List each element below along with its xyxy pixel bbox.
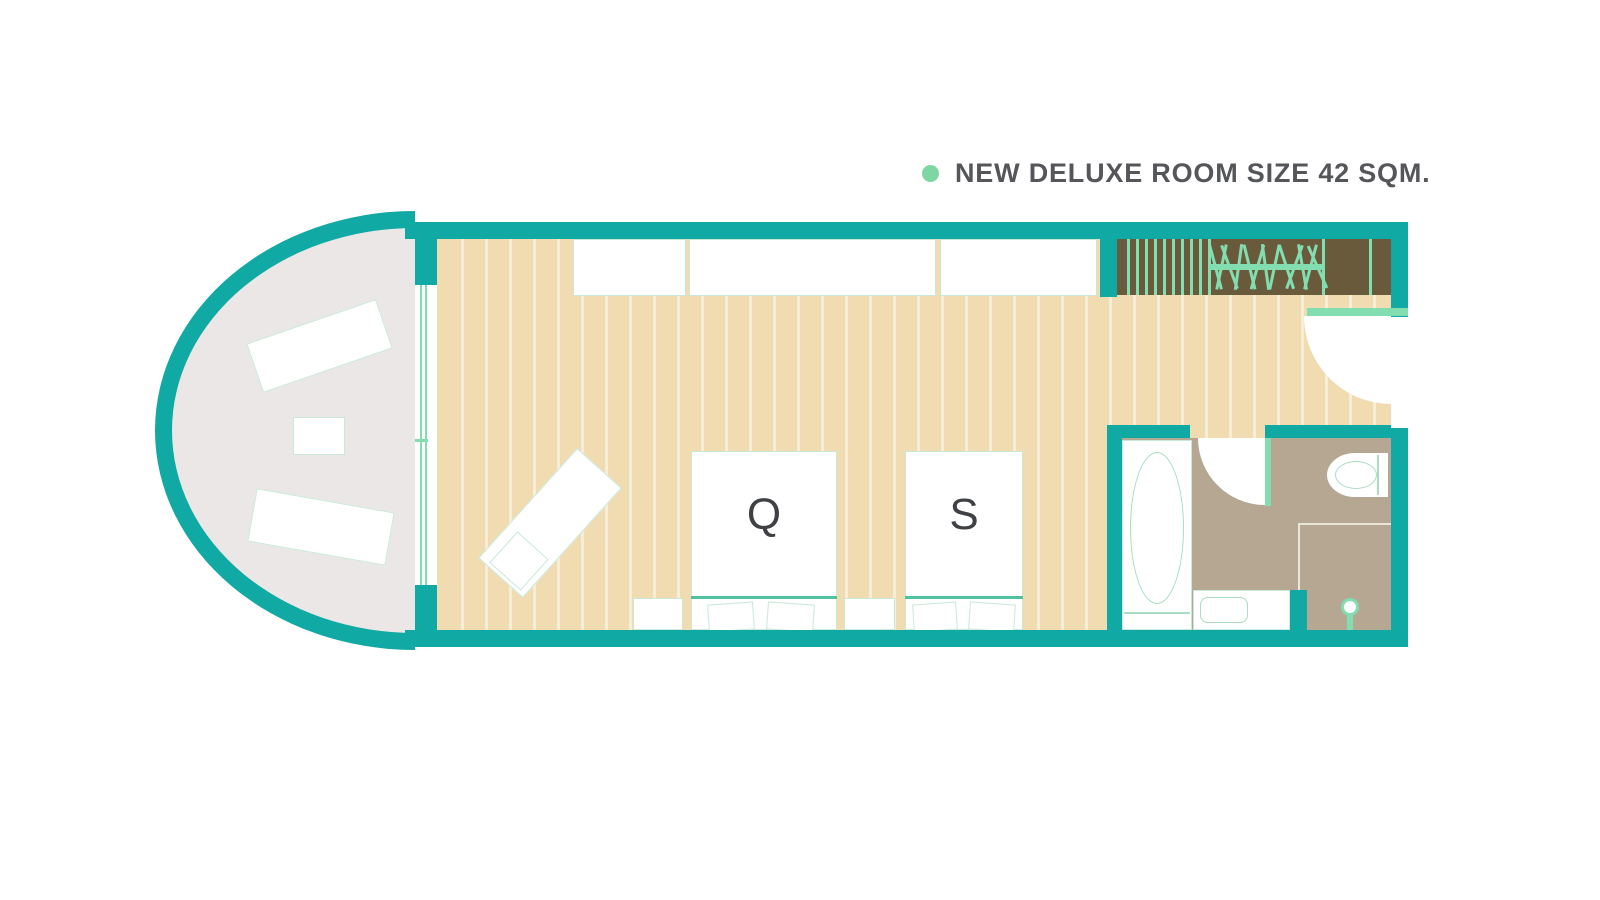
shower-drain-icon [1341,598,1359,616]
balcony-door-divider [415,439,428,442]
shower-drain-stem [1347,615,1353,630]
queen-bed-label: Q [692,490,836,540]
bathroom-door [1265,438,1271,506]
closet-shelf-line [1127,239,1130,295]
single-headboard-line [905,596,1023,599]
queen-headboard-line [691,596,837,599]
pillow [912,601,958,632]
shower-partition-top [1298,523,1391,525]
floor-plan-canvas: NEW DELUXE ROOM SIZE 42 SQM. [0,0,1600,900]
balcony-door-jamb-top [415,239,437,285]
toilet-tank-line [1377,455,1379,495]
closet-shelf-line [1190,239,1193,295]
balcony-door-glass-line2 [425,285,427,585]
legend-bullet-icon [922,165,939,182]
bathtub-ledge-line [1124,612,1190,614]
single-bed-label: S [906,490,1022,540]
pillow [766,601,815,632]
top-wall [405,222,1408,239]
balcony [150,205,420,655]
entry-door [1307,308,1408,316]
nightstand-middle [844,598,895,630]
closet-divider [1369,239,1372,295]
wall-console-middle [689,239,936,296]
shower-partition-left [1298,523,1300,590]
balcony-side-table [293,417,345,455]
bathtub-basin [1130,452,1184,604]
closet-shelf-line [1136,239,1139,295]
closet-partition-wall [1100,239,1117,297]
wall-console-left [573,239,686,296]
bathroom-left-wall [1107,425,1122,647]
closet-shelf-line [1154,239,1157,295]
plan-legend: NEW DELUXE ROOM SIZE 42 SQM. [922,158,1430,189]
right-wall-lower [1391,428,1408,647]
right-wall-upper [1391,222,1408,317]
pillow [968,601,1016,632]
closet-shelf-line [1163,239,1166,295]
vanity-shower-wall-stub [1290,590,1307,630]
closet-shelf-line [1181,239,1184,295]
closet-shelf-line [1145,239,1148,295]
bathroom-top-wall-left [1107,425,1190,438]
closet-shelf-line [1172,239,1175,295]
balcony-door-jamb-bottom [415,585,437,630]
bathroom-top-wall-right [1265,425,1391,438]
wall-console-right [940,239,1097,296]
closet-divider [1322,239,1325,295]
balcony-door-glass-line [420,285,422,585]
pillow [707,601,755,632]
queen-bed: Q [691,451,837,630]
bottom-wall [405,630,1408,647]
closet-shelf-line [1199,239,1202,295]
plan-title: NEW DELUXE ROOM SIZE 42 SQM. [955,158,1430,189]
toilet-seat [1335,461,1377,489]
nightstand-left [633,598,683,630]
sink-basin [1200,597,1248,623]
